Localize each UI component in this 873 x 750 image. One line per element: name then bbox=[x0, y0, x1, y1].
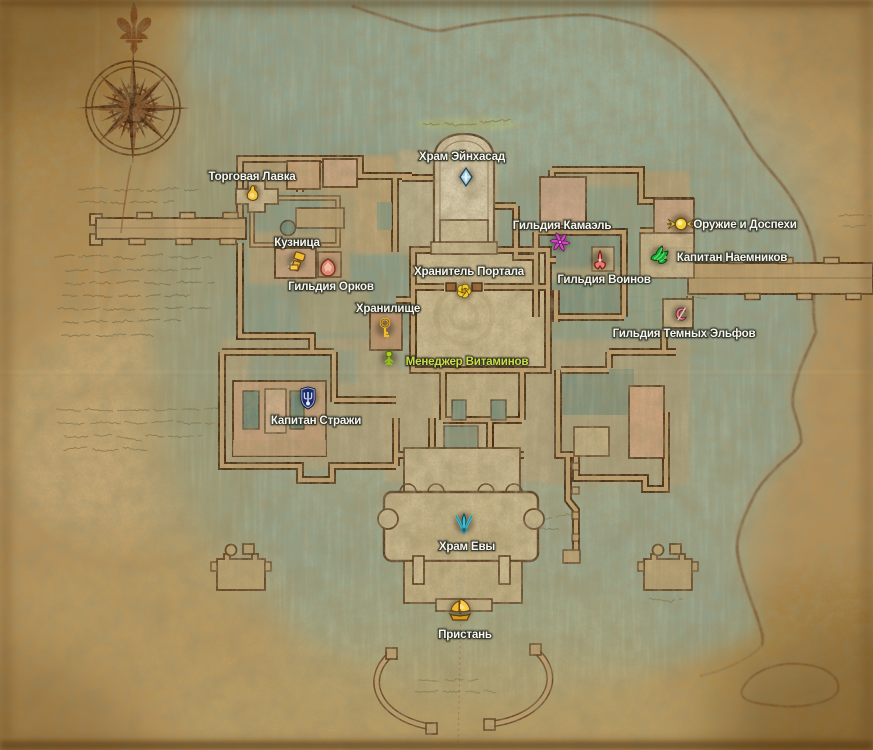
svg-text:Гильдия Орков: Гильдия Орков bbox=[288, 280, 374, 293]
svg-text:Хранитель Портала: Хранитель Портала bbox=[414, 265, 525, 278]
svg-text:Менеджер Витаминов: Менеджер Витаминов bbox=[406, 355, 529, 368]
svg-text:Пристань: Пристань bbox=[438, 628, 492, 641]
svg-text:Храм Евы: Храм Евы bbox=[439, 540, 496, 553]
svg-text:Торговая Лавка: Торговая Лавка bbox=[208, 170, 296, 183]
svg-text:Храм Эйнхасад: Храм Эйнхасад bbox=[419, 150, 506, 163]
svg-text:Кузница: Кузница bbox=[274, 236, 320, 249]
svg-text:Гильдия Камаэль: Гильдия Камаэль bbox=[513, 219, 612, 232]
svg-text:Хранилище: Хранилище bbox=[356, 302, 421, 315]
svg-text:Гильдия Темных Эльфов: Гильдия Темных Эльфов bbox=[613, 327, 756, 340]
svg-text:Капитан Стражи: Капитан Стражи bbox=[271, 414, 361, 427]
svg-text:Капитан Наемников: Капитан Наемников bbox=[677, 251, 787, 264]
svg-text:Гильдия Воинов: Гильдия Воинов bbox=[557, 273, 650, 286]
svg-text:Оружие и Доспехи: Оружие и Доспехи bbox=[693, 218, 796, 231]
